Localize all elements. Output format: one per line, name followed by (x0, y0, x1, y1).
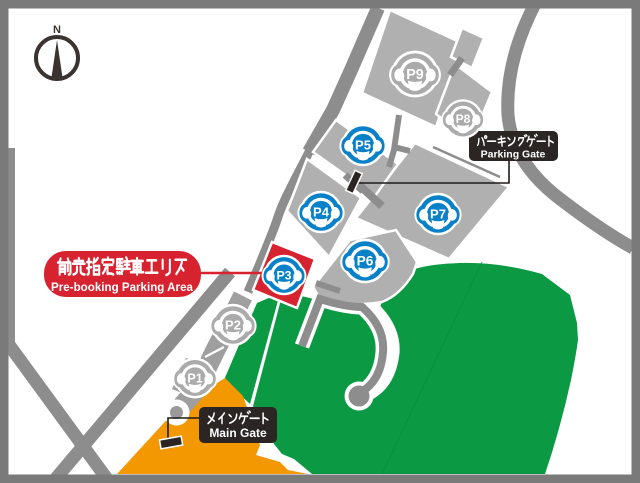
svg-text:N: N (53, 24, 61, 36)
svg-text:P9: P9 (406, 67, 424, 83)
svg-text:P2: P2 (225, 318, 241, 333)
svg-text:P8: P8 (456, 112, 471, 126)
svg-text:Parking Gate: Parking Gate (481, 149, 546, 161)
svg-text:P6: P6 (357, 254, 374, 269)
svg-text:P5: P5 (355, 138, 371, 153)
svg-text:Pre-booking Parking Area: Pre-booking Parking Area (51, 281, 194, 294)
svg-text:P1: P1 (187, 371, 202, 385)
svg-text:P4: P4 (313, 205, 330, 220)
svg-text:Main Gate: Main Gate (209, 426, 267, 440)
svg-text:P7: P7 (430, 207, 446, 222)
svg-text:P3: P3 (276, 268, 291, 282)
